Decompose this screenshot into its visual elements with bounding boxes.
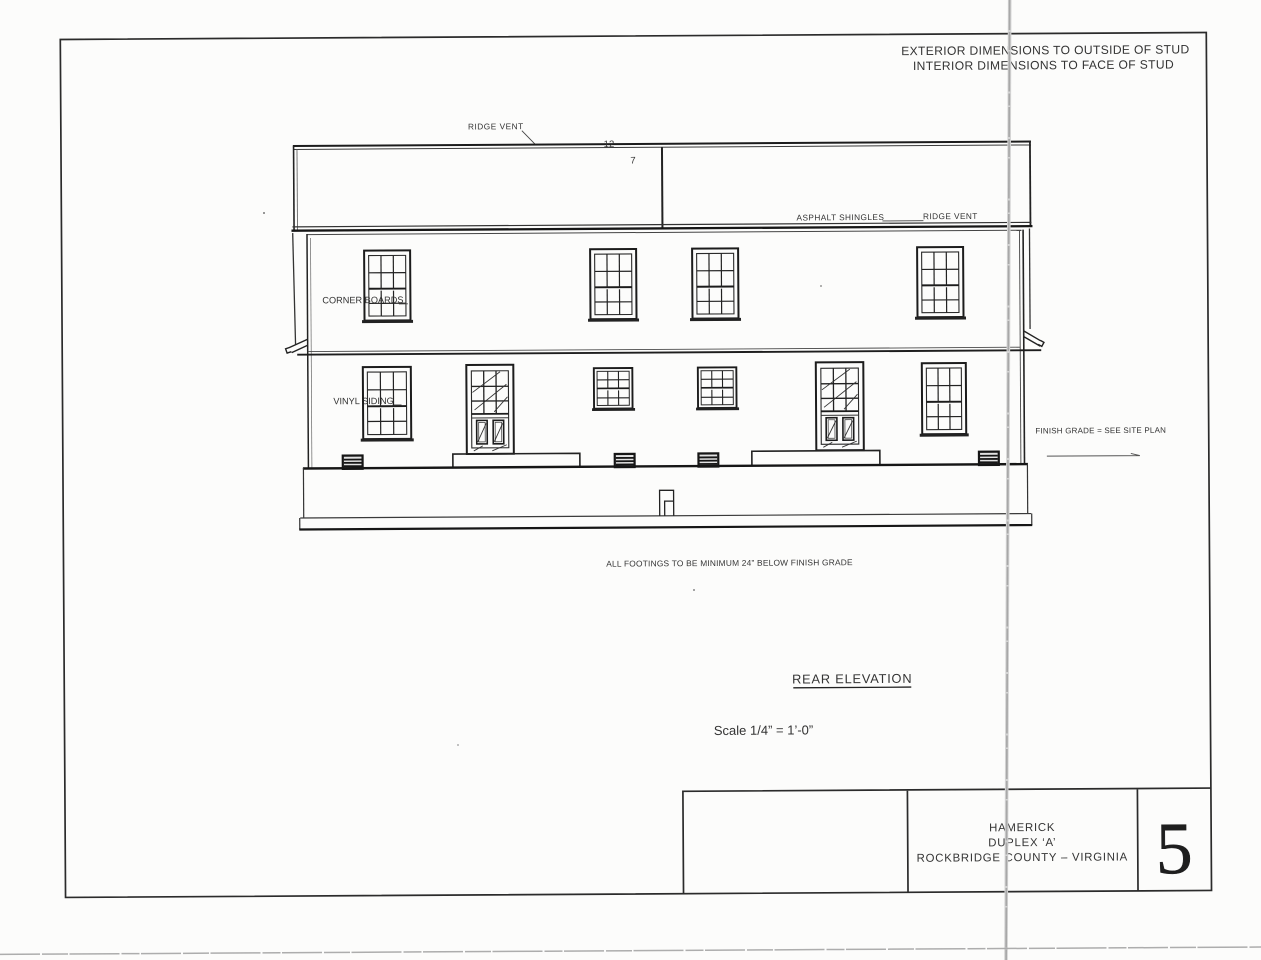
svg-text:12: 12 [604,139,615,150]
svg-text:RIDGE VENT: RIDGE VENT [923,211,978,221]
svg-text:7: 7 [630,155,635,166]
svg-text:HAMERICK: HAMERICK [989,822,1055,834]
svg-text:CORNER BOARDS: CORNER BOARDS [322,295,403,305]
svg-text:INTERIOR DIMENSIONS TO FACE OF: INTERIOR DIMENSIONS TO FACE OF STUD [913,57,1174,73]
svg-text:REAR ELEVATION: REAR ELEVATION [792,671,912,687]
svg-text:RIDGE VENT: RIDGE VENT [468,121,524,131]
svg-text:Scale 1/4” = 1’-0”: Scale 1/4” = 1’-0” [714,722,813,738]
svg-text:EXTERIOR DIMENSIONS TO OUTSIDE: EXTERIOR DIMENSIONS TO OUTSIDE OF STUD [901,42,1189,58]
svg-text:5: 5 [1156,808,1194,890]
svg-text:ALL FOOTINGS TO BE MINIMUM 24”: ALL FOOTINGS TO BE MINIMUM 24” BELOW FIN… [606,557,853,569]
svg-text:ASPHALT SHINGLES: ASPHALT SHINGLES [797,212,885,223]
svg-text:DUPLEX ‘A’: DUPLEX ‘A’ [988,837,1056,849]
svg-text:ROCKBRIDGE COUNTY – VIRGINIA: ROCKBRIDGE COUNTY – VIRGINIA [917,851,1128,864]
svg-text:FINISH GRADE = SEE SITE PLAN: FINISH GRADE = SEE SITE PLAN [1035,426,1166,436]
